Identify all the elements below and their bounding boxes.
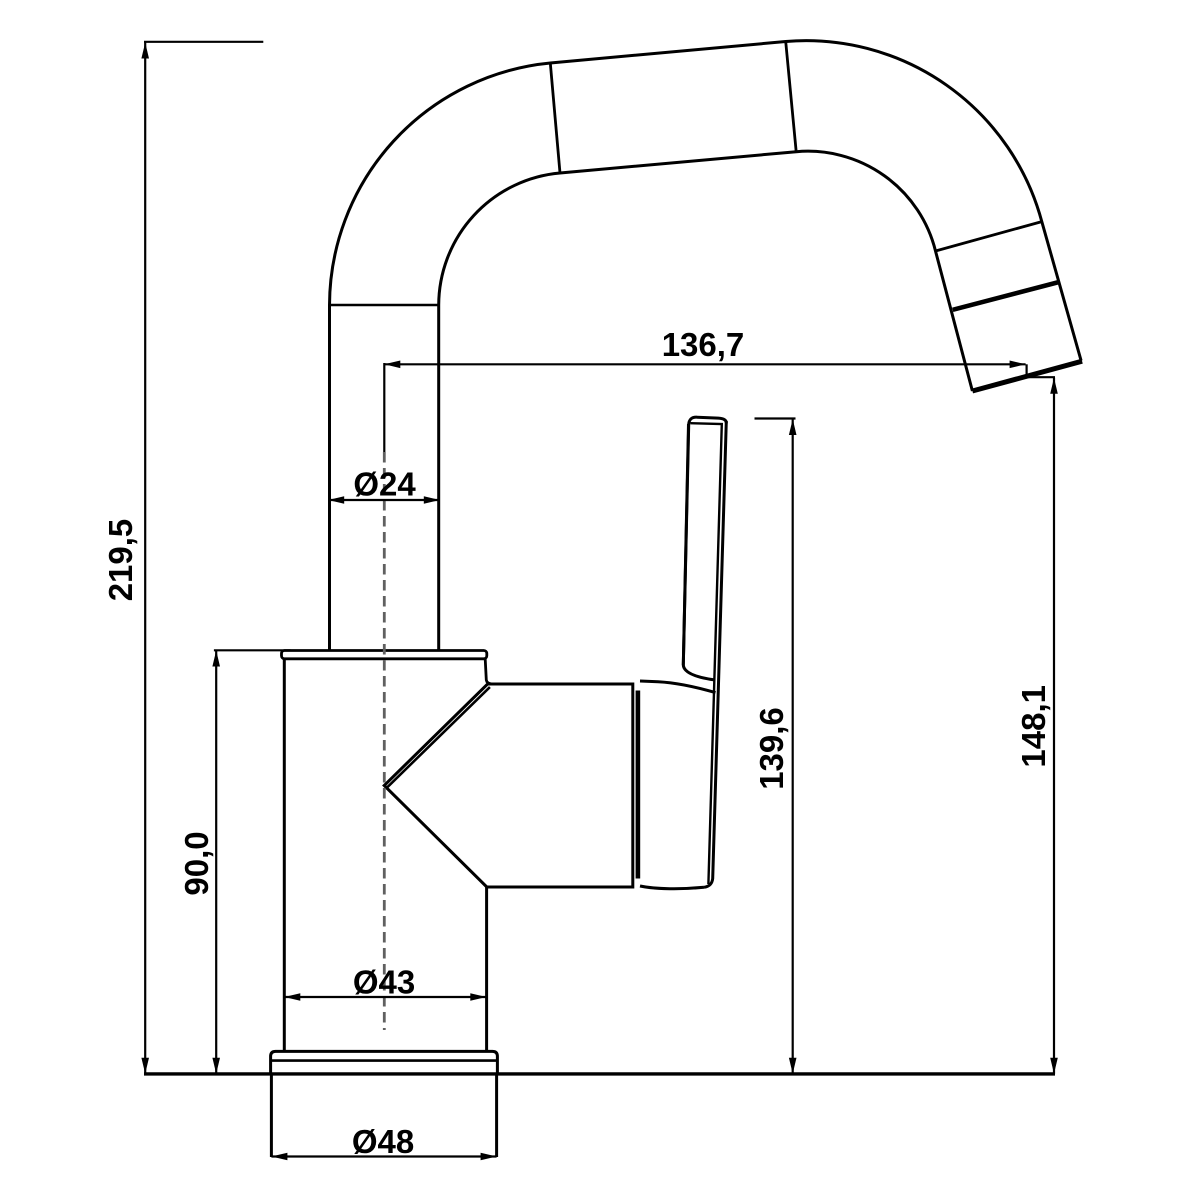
svg-text:148,1: 148,1 (1015, 685, 1052, 768)
svg-text:Ø24: Ø24 (353, 466, 416, 503)
svg-text:136,7: 136,7 (662, 326, 745, 363)
svg-text:Ø43: Ø43 (353, 964, 415, 1001)
svg-text:Ø48: Ø48 (352, 1123, 414, 1160)
svg-text:139,6: 139,6 (753, 707, 790, 790)
svg-text:90,0: 90,0 (178, 831, 215, 895)
svg-text:219,5: 219,5 (102, 519, 139, 602)
